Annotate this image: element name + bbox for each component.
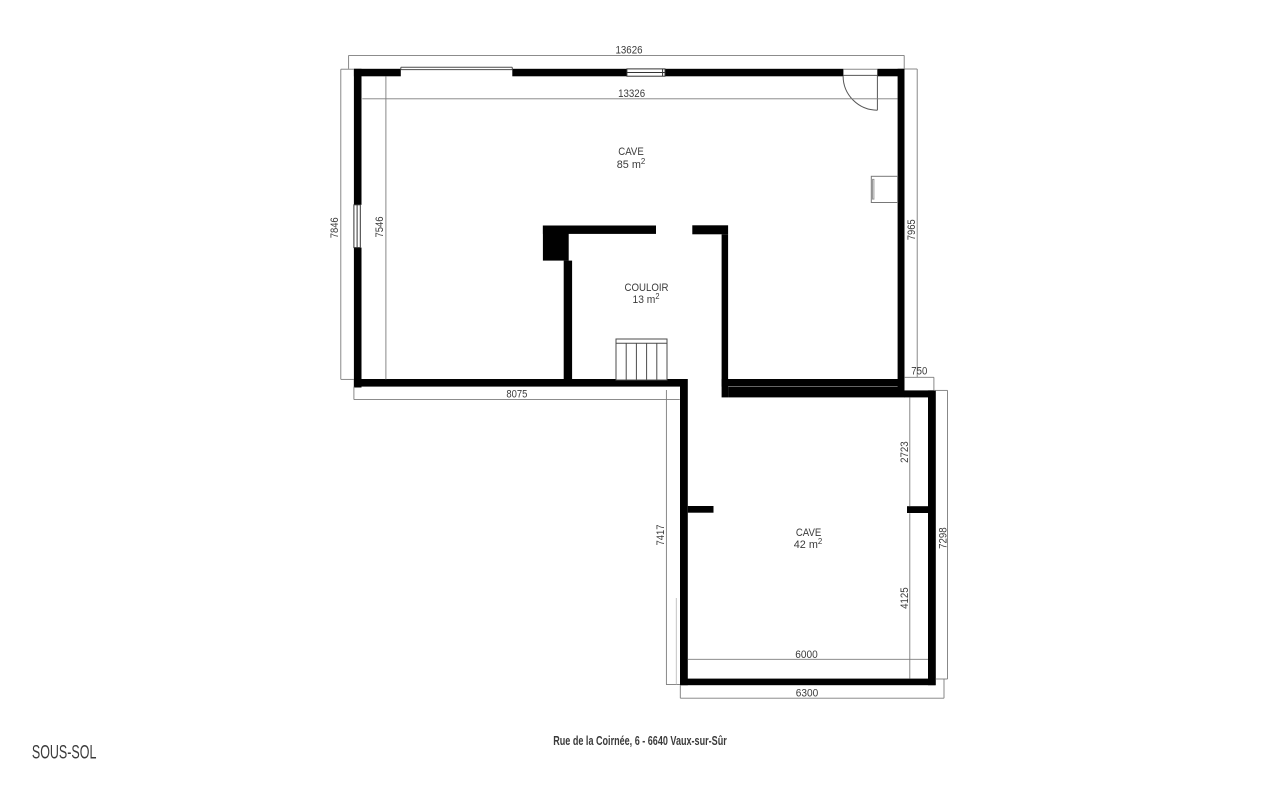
svg-text:COULOIR: COULOIR (625, 282, 669, 294)
svg-text:13326: 13326 (618, 88, 645, 100)
svg-text:7546: 7546 (374, 217, 386, 238)
svg-text:8075: 8075 (506, 389, 527, 401)
svg-text:750: 750 (911, 366, 927, 378)
svg-text:4125: 4125 (899, 587, 911, 609)
svg-text:7846: 7846 (329, 217, 341, 238)
svg-text:42 m2: 42 m2 (794, 537, 823, 551)
svg-text:13 m2: 13 m2 (633, 292, 661, 306)
svg-text:13626: 13626 (616, 45, 643, 57)
svg-text:7298: 7298 (937, 527, 949, 549)
svg-text:2723: 2723 (899, 441, 911, 463)
svg-text:85 m2: 85 m2 (617, 157, 646, 171)
svg-text:SOUS-SOL: SOUS-SOL (32, 742, 97, 763)
svg-text:6000: 6000 (795, 649, 818, 661)
svg-text:7417: 7417 (655, 525, 667, 546)
svg-text:6300: 6300 (796, 687, 819, 699)
svg-text:Rue de la Coirnée, 6 - 6640 Va: Rue de la Coirnée, 6 - 6640 Vaux-sur-Sûr (553, 734, 727, 748)
svg-text:7965: 7965 (906, 219, 918, 240)
